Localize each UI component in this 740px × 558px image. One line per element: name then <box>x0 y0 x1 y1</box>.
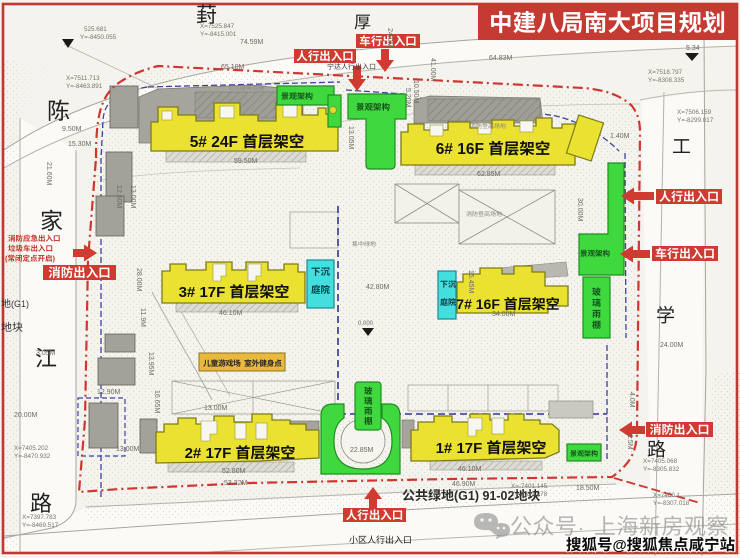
svg-text:7# 16F: 7# 16F <box>456 296 500 312</box>
svg-text:52.80M: 52.80M <box>222 468 246 475</box>
svg-text:15.30M: 15.30M <box>68 141 92 148</box>
svg-text:Y=-8308.335: Y=-8308.335 <box>648 77 685 84</box>
svg-text:59.50M: 59.50M <box>234 158 258 165</box>
svg-text:·: · <box>578 518 584 538</box>
svg-text:Y=-8323.278: Y=-8323.278 <box>511 491 548 498</box>
svg-text:2.5M: 2.5M <box>626 434 633 450</box>
svg-text:Y=-8415.001: Y=-8415.001 <box>200 31 237 38</box>
svg-text:X=7525.847: X=7525.847 <box>200 23 235 30</box>
svg-text:X=7397.783: X=7397.783 <box>22 514 57 521</box>
svg-text:X=7511.713: X=7511.713 <box>66 75 100 82</box>
svg-text:13.00M: 13.00M <box>204 405 228 412</box>
svg-text:Y=-8450.055: Y=-8450.055 <box>80 34 117 41</box>
svg-text:28.00M: 28.00M <box>135 268 142 292</box>
svg-text:24.00M: 24.00M <box>660 342 684 349</box>
svg-text:6# 16F: 6# 16F <box>436 141 484 158</box>
svg-text:64.83M: 64.83M <box>489 55 513 62</box>
svg-text:15.45M: 15.45M <box>467 270 474 294</box>
svg-text:13.05M: 13.05M <box>347 126 354 150</box>
svg-text:30.00M: 30.00M <box>576 198 583 222</box>
svg-text:10.50M: 10.50M <box>412 80 419 104</box>
svg-text:41.00M: 41.00M <box>429 58 436 82</box>
svg-text:(G1) 91-02: (G1) 91-02 <box>454 489 514 503</box>
svg-text:74.59M: 74.59M <box>240 39 264 46</box>
svg-text:Y=-8307.018: Y=-8307.018 <box>653 500 690 507</box>
svg-text:22.85M: 22.85M <box>350 447 374 454</box>
svg-text:Y=-8463.891: Y=-8463.891 <box>66 83 103 90</box>
svg-text:3.05M: 3.05M <box>36 350 56 357</box>
svg-text:1.40M: 1.40M <box>610 133 630 140</box>
svg-text:X=7518.797: X=7518.797 <box>648 69 683 76</box>
svg-text:Y=-8299.017: Y=-8299.017 <box>677 117 714 124</box>
svg-text:13.95M: 13.95M <box>147 352 154 376</box>
svg-text:46.10M: 46.10M <box>219 310 243 317</box>
svg-text:34.00M: 34.00M <box>492 311 516 318</box>
svg-text:42.80M: 42.80M <box>366 284 390 291</box>
svg-text:0.000: 0.000 <box>358 321 374 327</box>
svg-text:X=-7401.145: X=-7401.145 <box>511 483 548 490</box>
svg-text:@: @ <box>613 538 627 554</box>
svg-text:X=7405.202: X=7405.202 <box>14 445 49 452</box>
svg-text:13.00M: 13.00M <box>129 185 136 209</box>
svg-text:9.50M: 9.50M <box>62 126 82 133</box>
svg-text:12.60M: 12.60M <box>115 185 122 209</box>
svg-text:525.681: 525.681 <box>84 26 107 33</box>
svg-text:65.10M: 65.10M <box>221 64 245 71</box>
svg-text:46.10M: 46.10M <box>458 466 482 473</box>
svg-text:16.65M: 16.65M <box>153 390 160 414</box>
svg-text:5.20M: 5.20M <box>404 88 411 108</box>
svg-text:24.0M: 24.0M <box>386 28 393 48</box>
svg-text:4.0M: 4.0M <box>628 392 635 408</box>
svg-text:(G1): (G1) <box>11 299 29 309</box>
svg-text:11.9M: 11.9M <box>139 308 146 327</box>
svg-text:5.34: 5.34 <box>686 45 700 52</box>
svg-text:3# 17F: 3# 17F <box>179 284 226 301</box>
svg-text:53.22M: 53.22M <box>224 480 248 487</box>
svg-text:62.85M: 62.85M <box>477 171 501 178</box>
svg-text:X=7405.068: X=7405.068 <box>643 458 678 465</box>
svg-text:18.50M: 18.50M <box>576 485 600 492</box>
svg-text:Y=-8470.932: Y=-8470.932 <box>14 453 51 460</box>
svg-text:5# 24F: 5# 24F <box>190 134 238 151</box>
svg-text:20.00M: 20.00M <box>14 412 38 419</box>
svg-text:12.90M: 12.90M <box>97 389 121 396</box>
svg-text:46.90M: 46.90M <box>452 481 476 488</box>
svg-text:Y=-8305.832: Y=-8305.832 <box>643 466 680 473</box>
svg-text:2# 17F: 2# 17F <box>185 445 232 462</box>
svg-text:Y=-8469.517: Y=-8469.517 <box>22 522 59 529</box>
svg-text:21.60M: 21.60M <box>45 162 52 186</box>
svg-text:X=7506.159: X=7506.159 <box>677 109 712 116</box>
svg-text:X=7400.1: X=7400.1 <box>653 492 681 499</box>
svg-text:1# 17F: 1# 17F <box>436 440 483 457</box>
svg-text:13.00M: 13.00M <box>116 446 140 453</box>
